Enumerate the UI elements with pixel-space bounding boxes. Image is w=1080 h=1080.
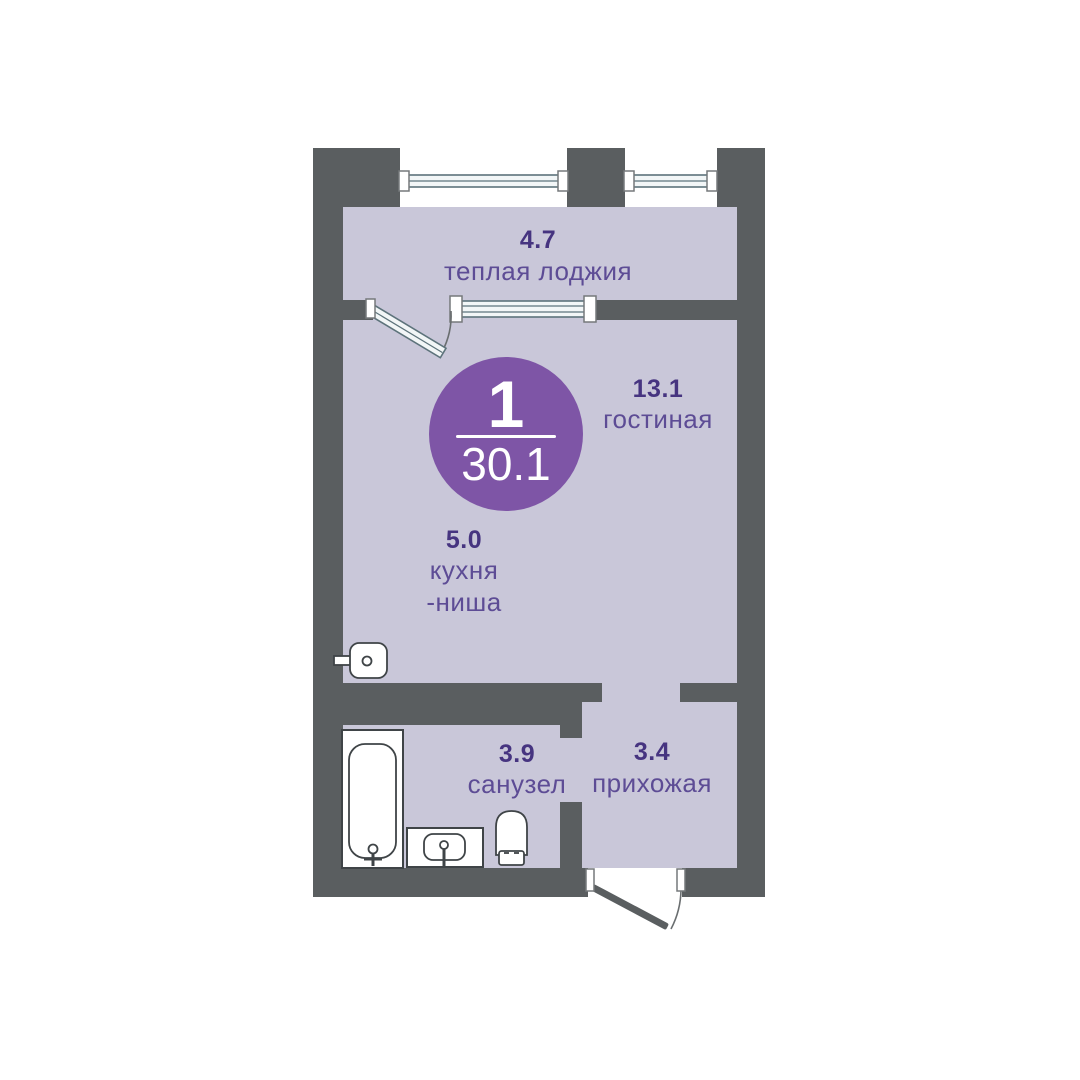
bathroom-top-wall bbox=[343, 683, 582, 725]
window-cap-right bbox=[558, 171, 568, 191]
facade-window-2 bbox=[624, 148, 717, 207]
door-jamb-right bbox=[677, 869, 685, 891]
bathtub-icon bbox=[342, 730, 403, 868]
hall-top-wall-right bbox=[680, 683, 737, 702]
window-cap-right bbox=[584, 296, 596, 322]
door-jamb-left bbox=[586, 869, 594, 891]
bath-hall-divider-upper bbox=[560, 683, 582, 738]
kitchen-area-label: 5.0 bbox=[446, 526, 482, 554]
toilet-tank bbox=[499, 851, 524, 865]
floor-plan-image: 4.7 теплая лоджия 13.1 гостиная 5.0 кухн… bbox=[0, 0, 1080, 1080]
hall-top-wall-left bbox=[582, 683, 602, 702]
window-icon bbox=[461, 301, 585, 317]
loggia-area-label: 4.7 bbox=[520, 226, 556, 254]
badge-total-area: 30.1 bbox=[461, 438, 551, 490]
door-jamb bbox=[366, 299, 375, 318]
bathroom-name-label: санузел bbox=[468, 769, 567, 799]
living-name-label: гостиная bbox=[603, 404, 713, 434]
loggia-name-label: теплая лоджия bbox=[444, 256, 632, 286]
facade-window-1 bbox=[399, 148, 568, 207]
entrance-door bbox=[586, 868, 685, 930]
living-area-label: 13.1 bbox=[633, 375, 684, 403]
kitchen-name-label: кухня bbox=[430, 555, 499, 585]
wall-bottom bbox=[313, 868, 765, 897]
window-cap-right bbox=[707, 171, 717, 191]
bath-hall-divider-lower bbox=[560, 802, 582, 868]
badge-rooms-count: 1 bbox=[488, 367, 525, 441]
bathroom-area-label: 3.9 bbox=[499, 740, 535, 768]
window-cap-left bbox=[624, 171, 634, 191]
plan-badge: 1 30.1 bbox=[429, 357, 583, 511]
hallway-name-label: прихожая bbox=[592, 768, 712, 798]
appliance-stub bbox=[334, 656, 351, 665]
toilet-bowl bbox=[496, 811, 527, 855]
wall-left bbox=[313, 148, 343, 897]
bathtub-tub bbox=[349, 744, 396, 858]
sink-icon bbox=[407, 828, 483, 867]
bathtub-drain bbox=[369, 845, 378, 854]
toilet-icon bbox=[496, 811, 527, 865]
window-cap-left bbox=[399, 171, 409, 191]
wall-right bbox=[737, 148, 765, 897]
sink-drain bbox=[440, 841, 448, 849]
loggia-wall-right bbox=[596, 300, 737, 320]
floor-plan-page: 4.7 теплая лоджия 13.1 гостиная 5.0 кухн… bbox=[0, 0, 1080, 1080]
appliance-knob bbox=[363, 657, 372, 666]
hallway-area-label: 3.4 bbox=[634, 738, 670, 766]
kitchen-name-label2: -ниша bbox=[426, 587, 501, 617]
